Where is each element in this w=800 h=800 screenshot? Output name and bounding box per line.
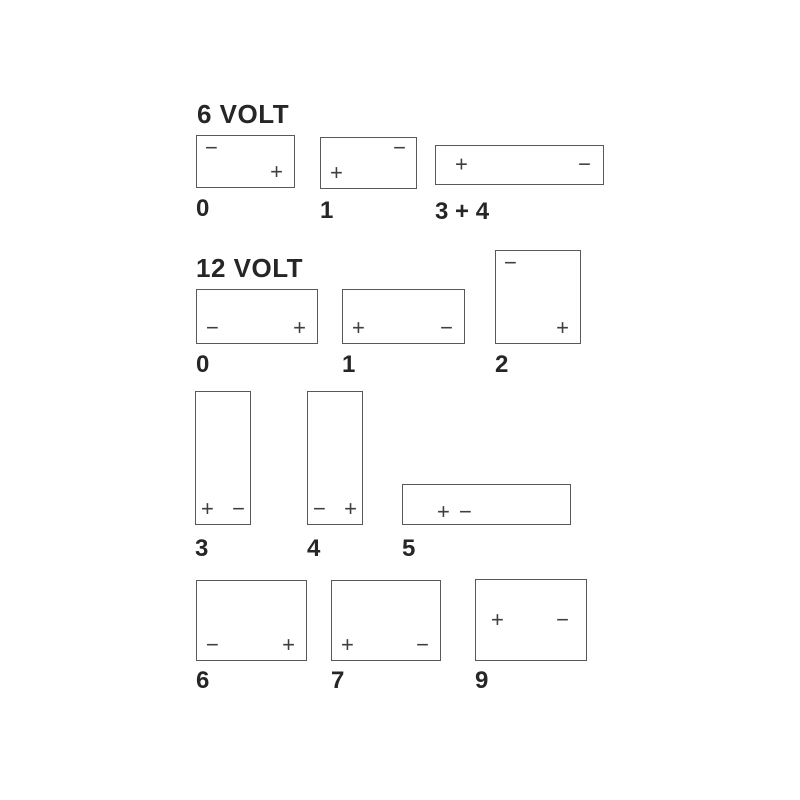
battery-12v-type-7-outline: + − [331, 580, 441, 661]
battery-12v-type-9-label: 9 [475, 669, 587, 693]
battery-12v-type-1: + − 1 [342, 289, 465, 377]
battery-12v-type-6-label: 6 [196, 669, 307, 693]
section-heading-12-volt: 12 VOLT [196, 255, 303, 281]
negative-terminal: − [504, 252, 517, 274]
battery-6v-type-1: − + 1 [320, 137, 417, 223]
battery-12v-type-2-label: 2 [495, 353, 581, 377]
battery-6v-type-3-4-outline: + − [435, 145, 604, 185]
battery-12v-type-9: + − 9 [475, 579, 587, 693]
negative-terminal: − [440, 317, 453, 339]
negative-terminal: − [205, 137, 218, 159]
battery-12v-type-5-label: 5 [402, 537, 571, 561]
battery-12v-type-7-label: 7 [331, 669, 441, 693]
battery-12v-type-2-outline: − + [495, 250, 581, 344]
battery-12v-type-3: + − 3 [195, 391, 251, 561]
battery-12v-type-0-outline: − + [196, 289, 318, 344]
battery-12v-type-1-label: 1 [342, 353, 465, 377]
battery-12v-type-4-label: 4 [307, 537, 363, 561]
battery-6v-type-3-4: + − 3 + 4 [435, 145, 604, 224]
battery-6v-type-0-outline: − + [196, 135, 295, 188]
battery-12v-type-3-outline: + − [195, 391, 251, 525]
battery-12v-type-4-outline: − + [307, 391, 363, 525]
battery-12v-type-5: + − 5 [402, 484, 571, 561]
positive-terminal: + [344, 498, 357, 520]
battery-12v-type-0-label: 0 [196, 353, 318, 377]
section-heading-6-volt: 6 VOLT [197, 101, 289, 127]
battery-6v-type-3-4-label: 3 + 4 [435, 200, 604, 224]
negative-terminal: − [416, 634, 429, 656]
battery-6v-type-0: − + 0 [196, 135, 295, 221]
negative-terminal: − [459, 501, 472, 523]
battery-12v-type-9-outline: + − [475, 579, 587, 661]
battery-12v-type-2: − + 2 [495, 250, 581, 377]
negative-terminal: − [206, 317, 219, 339]
positive-terminal: + [330, 162, 343, 184]
negative-terminal: − [232, 498, 245, 520]
positive-terminal: + [437, 501, 450, 523]
battery-6v-type-1-label: 1 [320, 199, 417, 223]
positive-terminal: + [341, 634, 354, 656]
battery-12v-type-6: − + 6 [196, 580, 307, 693]
battery-12v-type-6-outline: − + [196, 580, 307, 661]
positive-terminal: + [270, 161, 283, 183]
battery-12v-type-1-outline: + − [342, 289, 465, 344]
positive-terminal: + [556, 317, 569, 339]
battery-terminal-layout-diagram: 6 VOLT − + 0 − + 1 + − 3 + 4 12 VOLT − +… [0, 0, 800, 800]
battery-6v-type-0-label: 0 [196, 197, 295, 221]
positive-terminal: + [282, 634, 295, 656]
negative-terminal: − [578, 154, 591, 176]
negative-terminal: − [556, 609, 569, 631]
negative-terminal: − [313, 498, 326, 520]
positive-terminal: + [455, 154, 468, 176]
positive-terminal: + [491, 609, 504, 631]
negative-terminal: − [393, 137, 406, 159]
positive-terminal: + [201, 498, 214, 520]
battery-12v-type-3-label: 3 [195, 537, 251, 561]
positive-terminal: + [293, 317, 306, 339]
battery-6v-type-1-outline: − + [320, 137, 417, 189]
battery-12v-type-0: − + 0 [196, 289, 318, 377]
negative-terminal: − [206, 634, 219, 656]
battery-12v-type-4: − + 4 [307, 391, 363, 561]
battery-12v-type-7: + − 7 [331, 580, 441, 693]
battery-12v-type-5-outline: + − [402, 484, 571, 525]
positive-terminal: + [352, 317, 365, 339]
